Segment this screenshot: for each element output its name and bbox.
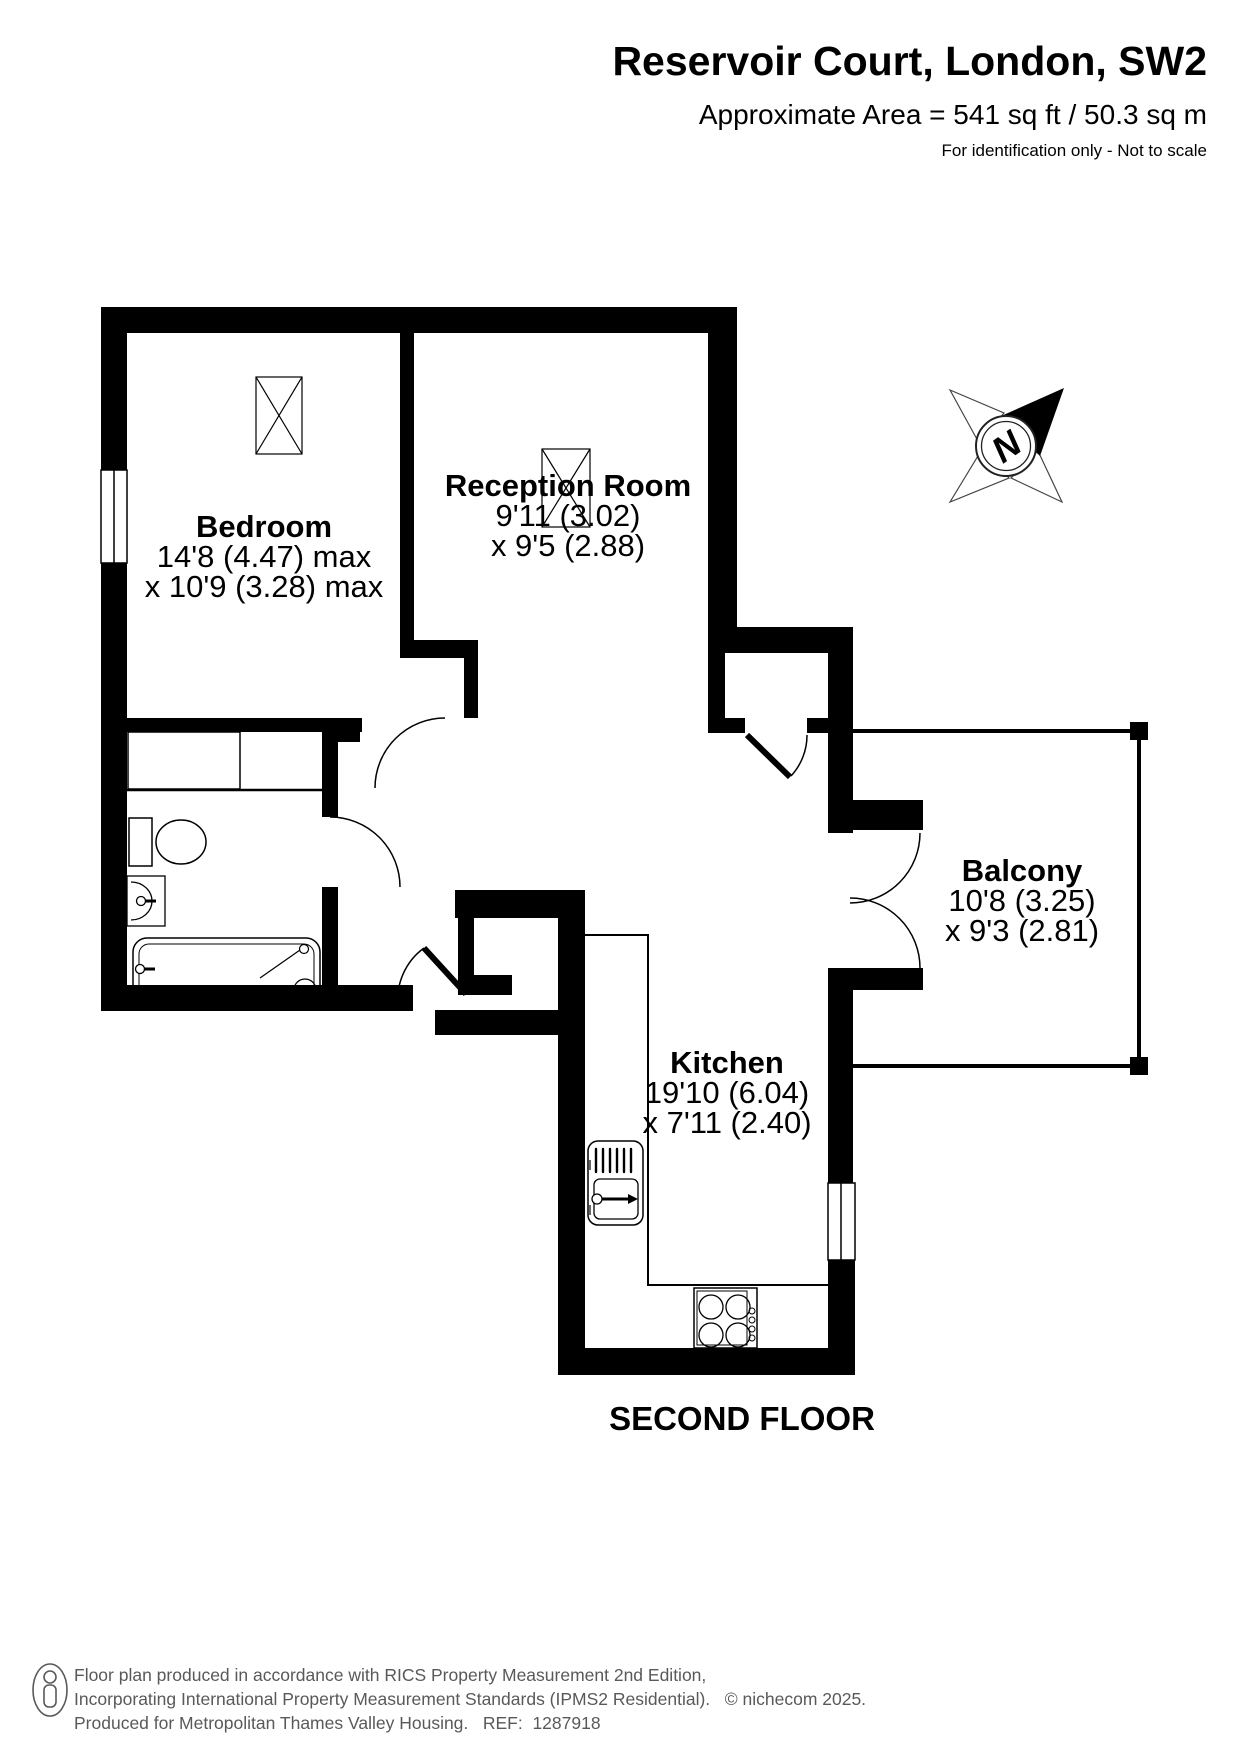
- room-name: Kitchen: [642, 1048, 811, 1078]
- window-kitchen: [828, 1183, 855, 1260]
- page-title: Reservoir Court, London, SW2: [612, 38, 1207, 85]
- room-label-reception: Reception Room 9'11 (3.02) x 9'5 (2.88): [445, 471, 691, 561]
- room-dims: 19'10 (6.04): [642, 1078, 811, 1108]
- compass-rose-icon: N: [950, 388, 1064, 502]
- approximate-area: Approximate Area = 541 sq ft / 50.3 sq m: [612, 99, 1207, 131]
- bathroom-door-arc: [330, 817, 400, 887]
- footer-text: Floor plan produced in accordance with R…: [74, 1663, 866, 1735]
- room-dims: x 10'9 (3.28) max: [145, 572, 384, 602]
- person-icon: [30, 1662, 72, 1718]
- footer-line-1: Floor plan produced in accordance with R…: [74, 1663, 866, 1687]
- kitchen-sink: [588, 1141, 643, 1225]
- room-dims: 10'8 (3.25): [945, 886, 1099, 916]
- room-dims: x 9'5 (2.88): [445, 531, 691, 561]
- room-label-balcony: Balcony 10'8 (3.25) x 9'3 (2.81): [945, 856, 1099, 946]
- footer-line-2: Incorporating International Property Mea…: [74, 1687, 866, 1711]
- room-dims: 14'8 (4.47) max: [145, 542, 384, 572]
- room-name: Balcony: [945, 856, 1099, 886]
- floor-label: SECOND FLOOR: [609, 1400, 875, 1438]
- bedroom-door-arc: [375, 718, 445, 788]
- room-dims: x 9'3 (2.81): [945, 916, 1099, 946]
- balcony-post-top: [1130, 722, 1148, 740]
- header: Reservoir Court, London, SW2 Approximate…: [612, 38, 1207, 161]
- footer-line-3: Produced for Metropolitan Thames Valley …: [74, 1711, 866, 1735]
- balcony-post-bottom: [1130, 1057, 1148, 1075]
- basin: [127, 876, 165, 926]
- wardrobe: [128, 732, 240, 789]
- identification-note: For identification only - Not to scale: [612, 141, 1207, 161]
- room-dims: 9'11 (3.02): [445, 501, 691, 531]
- french-doors-balcony: [850, 833, 920, 968]
- room-name: Bedroom: [145, 512, 384, 542]
- bathtub: [133, 938, 320, 1006]
- floorplan-page: N Reservoir Court, London, SW2 Approxima…: [0, 0, 1241, 1755]
- window-cross-symbol-bedroom: [256, 377, 302, 454]
- toilet: [129, 818, 206, 866]
- room-name: Reception Room: [445, 471, 691, 501]
- entry-door: [747, 735, 807, 777]
- room-dims: x 7'11 (2.40): [642, 1108, 811, 1138]
- window-bedroom: [101, 470, 127, 563]
- room-label-bedroom: Bedroom 14'8 (4.47) max x 10'9 (3.28) ma…: [145, 512, 384, 602]
- room-label-kitchen: Kitchen 19'10 (6.04) x 7'11 (2.40): [642, 1048, 811, 1138]
- hob: [694, 1288, 757, 1348]
